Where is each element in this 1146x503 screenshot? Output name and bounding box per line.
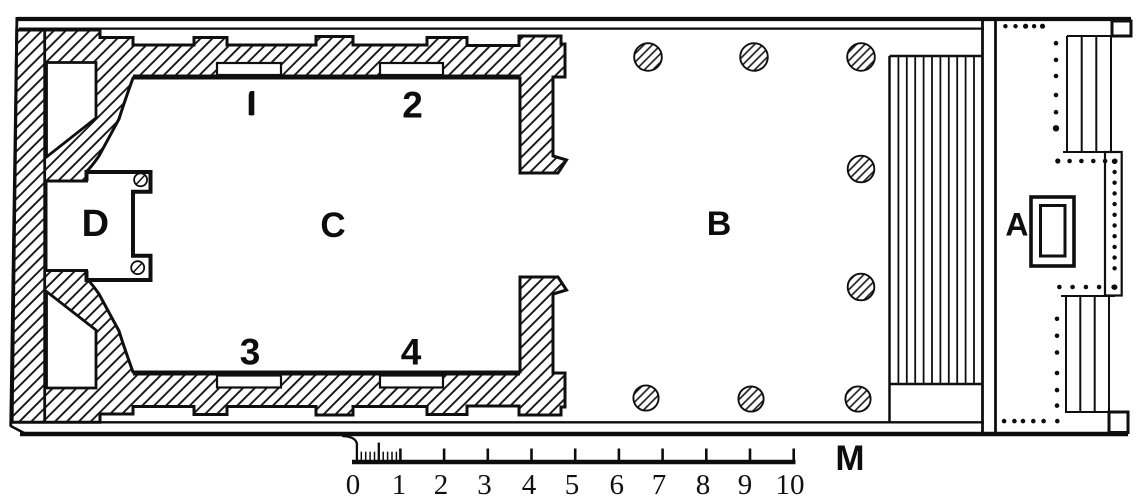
svg-text:C: C [320, 206, 345, 245]
svg-text:2: 2 [402, 85, 423, 126]
svg-text:10: 10 [776, 469, 805, 501]
svg-text:3: 3 [240, 332, 261, 373]
svg-text:7: 7 [652, 469, 667, 501]
svg-text:8: 8 [696, 469, 711, 501]
svg-text:3: 3 [477, 469, 492, 501]
svg-text:D: D [82, 203, 109, 245]
svg-text:2: 2 [434, 469, 449, 501]
svg-text:6: 6 [610, 469, 625, 501]
svg-text:B: B [707, 205, 732, 243]
svg-text:9: 9 [738, 469, 753, 501]
svg-text:1: 1 [392, 469, 407, 501]
svg-text:4: 4 [522, 469, 537, 501]
svg-text:4: 4 [401, 332, 422, 373]
svg-text:0: 0 [346, 469, 361, 501]
svg-text:A: A [1005, 207, 1028, 243]
svg-text:M: M [835, 439, 864, 478]
svg-text:5: 5 [565, 469, 580, 501]
